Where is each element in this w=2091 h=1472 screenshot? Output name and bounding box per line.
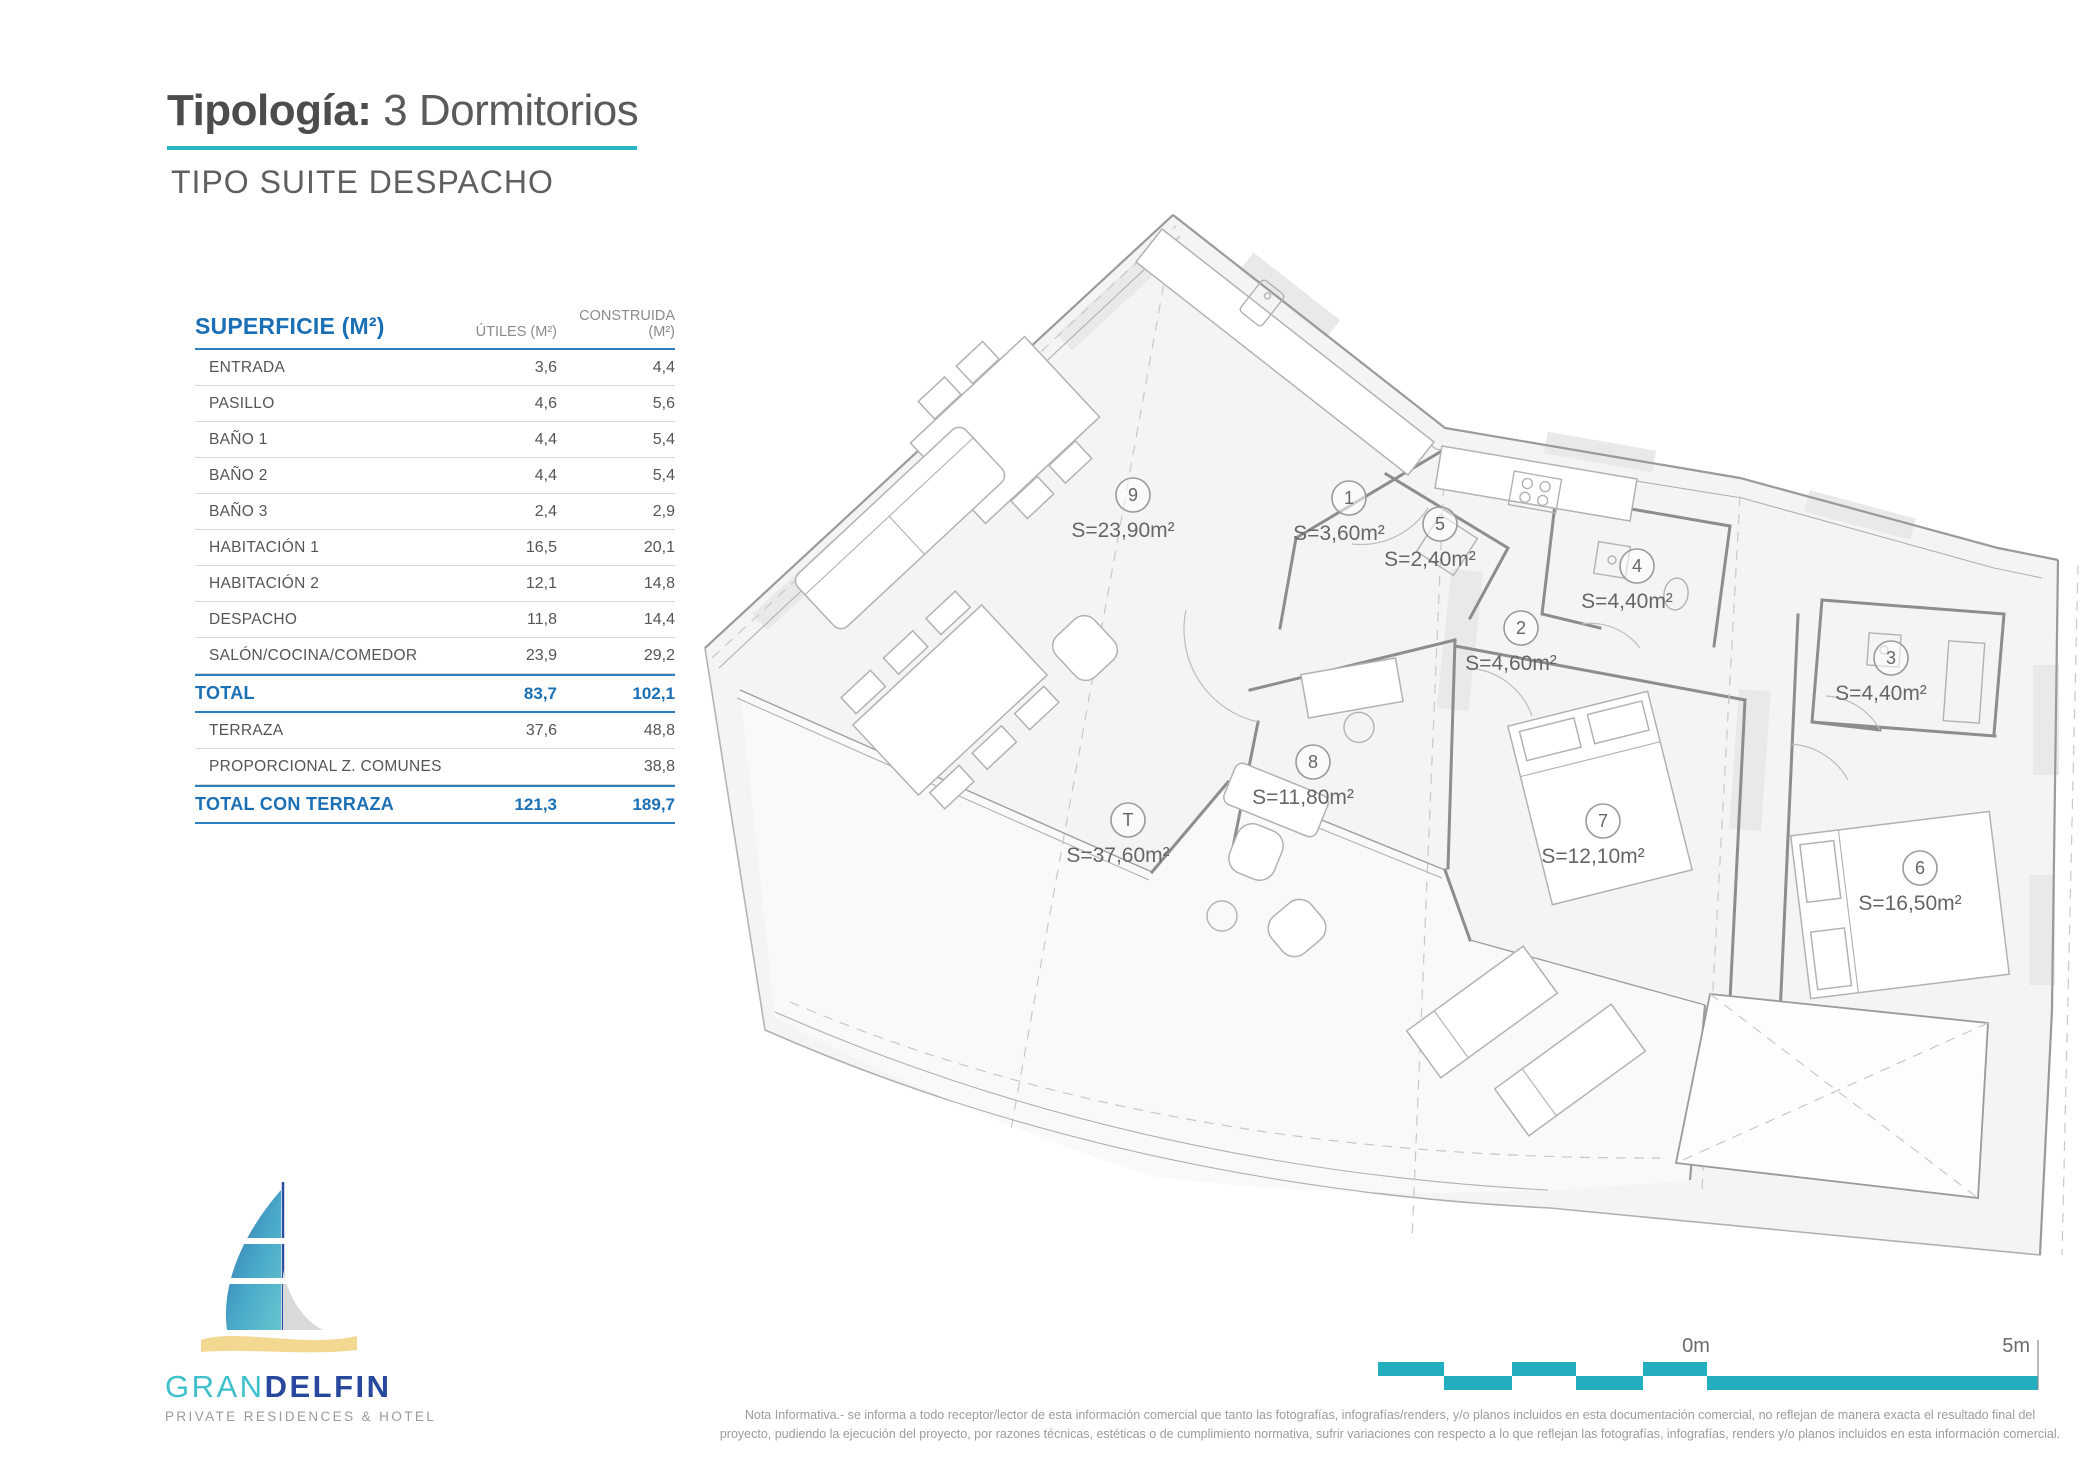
room-number: 7 — [1598, 811, 1608, 831]
scale-end-label: 5m — [2002, 1335, 2030, 1357]
brand-logo: GRANDELFIN PRIVATE RESIDENCES & HOTEL — [165, 1178, 465, 1424]
room-number: 3 — [1886, 648, 1896, 668]
room-number: 8 — [1308, 752, 1318, 772]
room-number: 5 — [1435, 514, 1445, 534]
room-number: 1 — [1344, 488, 1354, 508]
room-area: S=2,40m² — [1384, 548, 1476, 571]
room-area: S=37,60m² — [1066, 844, 1169, 867]
scale-zero-label: 0m — [1682, 1335, 1710, 1357]
room-number: 9 — [1128, 485, 1138, 505]
room-area: S=4,40m² — [1581, 590, 1673, 613]
room-area: S=16,50m² — [1858, 892, 1961, 915]
legal-note-line1: Nota Informativa.- se informa a todo rec… — [700, 1406, 2080, 1425]
room-area: S=23,90m² — [1071, 519, 1174, 542]
room-number: 6 — [1915, 858, 1925, 878]
brand-tagline: PRIVATE RESIDENCES & HOTEL — [165, 1409, 465, 1424]
excluded-area — [1676, 994, 1988, 1198]
brand-name: GRANDELFIN — [165, 1369, 465, 1405]
room-number: 4 — [1632, 556, 1642, 576]
brand-delfin: DELFIN — [265, 1369, 392, 1404]
legal-note-line2: proyecto, pudiendo la ejecución del proy… — [700, 1425, 2080, 1444]
room-number: T — [1123, 810, 1134, 830]
room-number: 2 — [1516, 618, 1526, 638]
brand-gran: GRAN — [165, 1369, 265, 1404]
room-area: S=12,10m² — [1541, 845, 1644, 868]
room-area: S=4,60m² — [1465, 652, 1557, 675]
room-area: S=4,40m² — [1835, 682, 1927, 705]
room-area: S=3,60m² — [1293, 522, 1385, 545]
scale-bar: 0m 5m — [1378, 1335, 2038, 1390]
legal-note: Nota Informativa.- se informa a todo rec… — [700, 1406, 2080, 1444]
sail-tower-icon — [165, 1178, 375, 1358]
room-area: S=11,80m² — [1252, 786, 1354, 809]
